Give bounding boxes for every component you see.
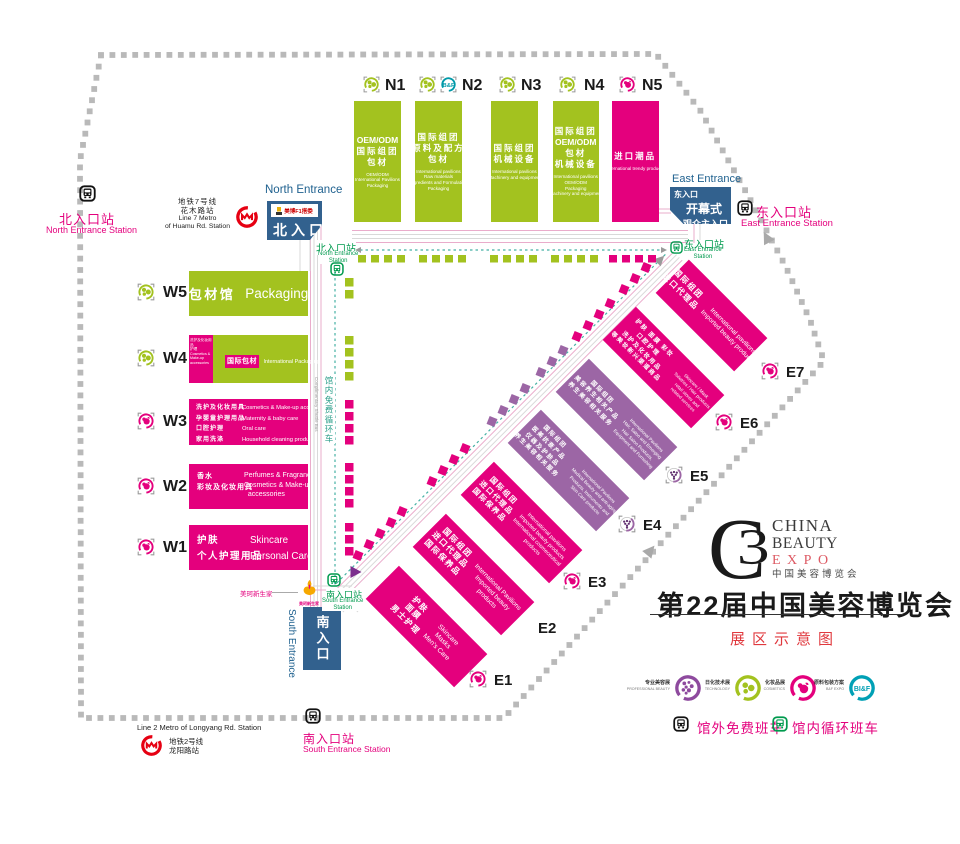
svg-text:BI&F: BI&F	[854, 686, 870, 693]
svg-text:B&F: B&F	[442, 83, 454, 89]
